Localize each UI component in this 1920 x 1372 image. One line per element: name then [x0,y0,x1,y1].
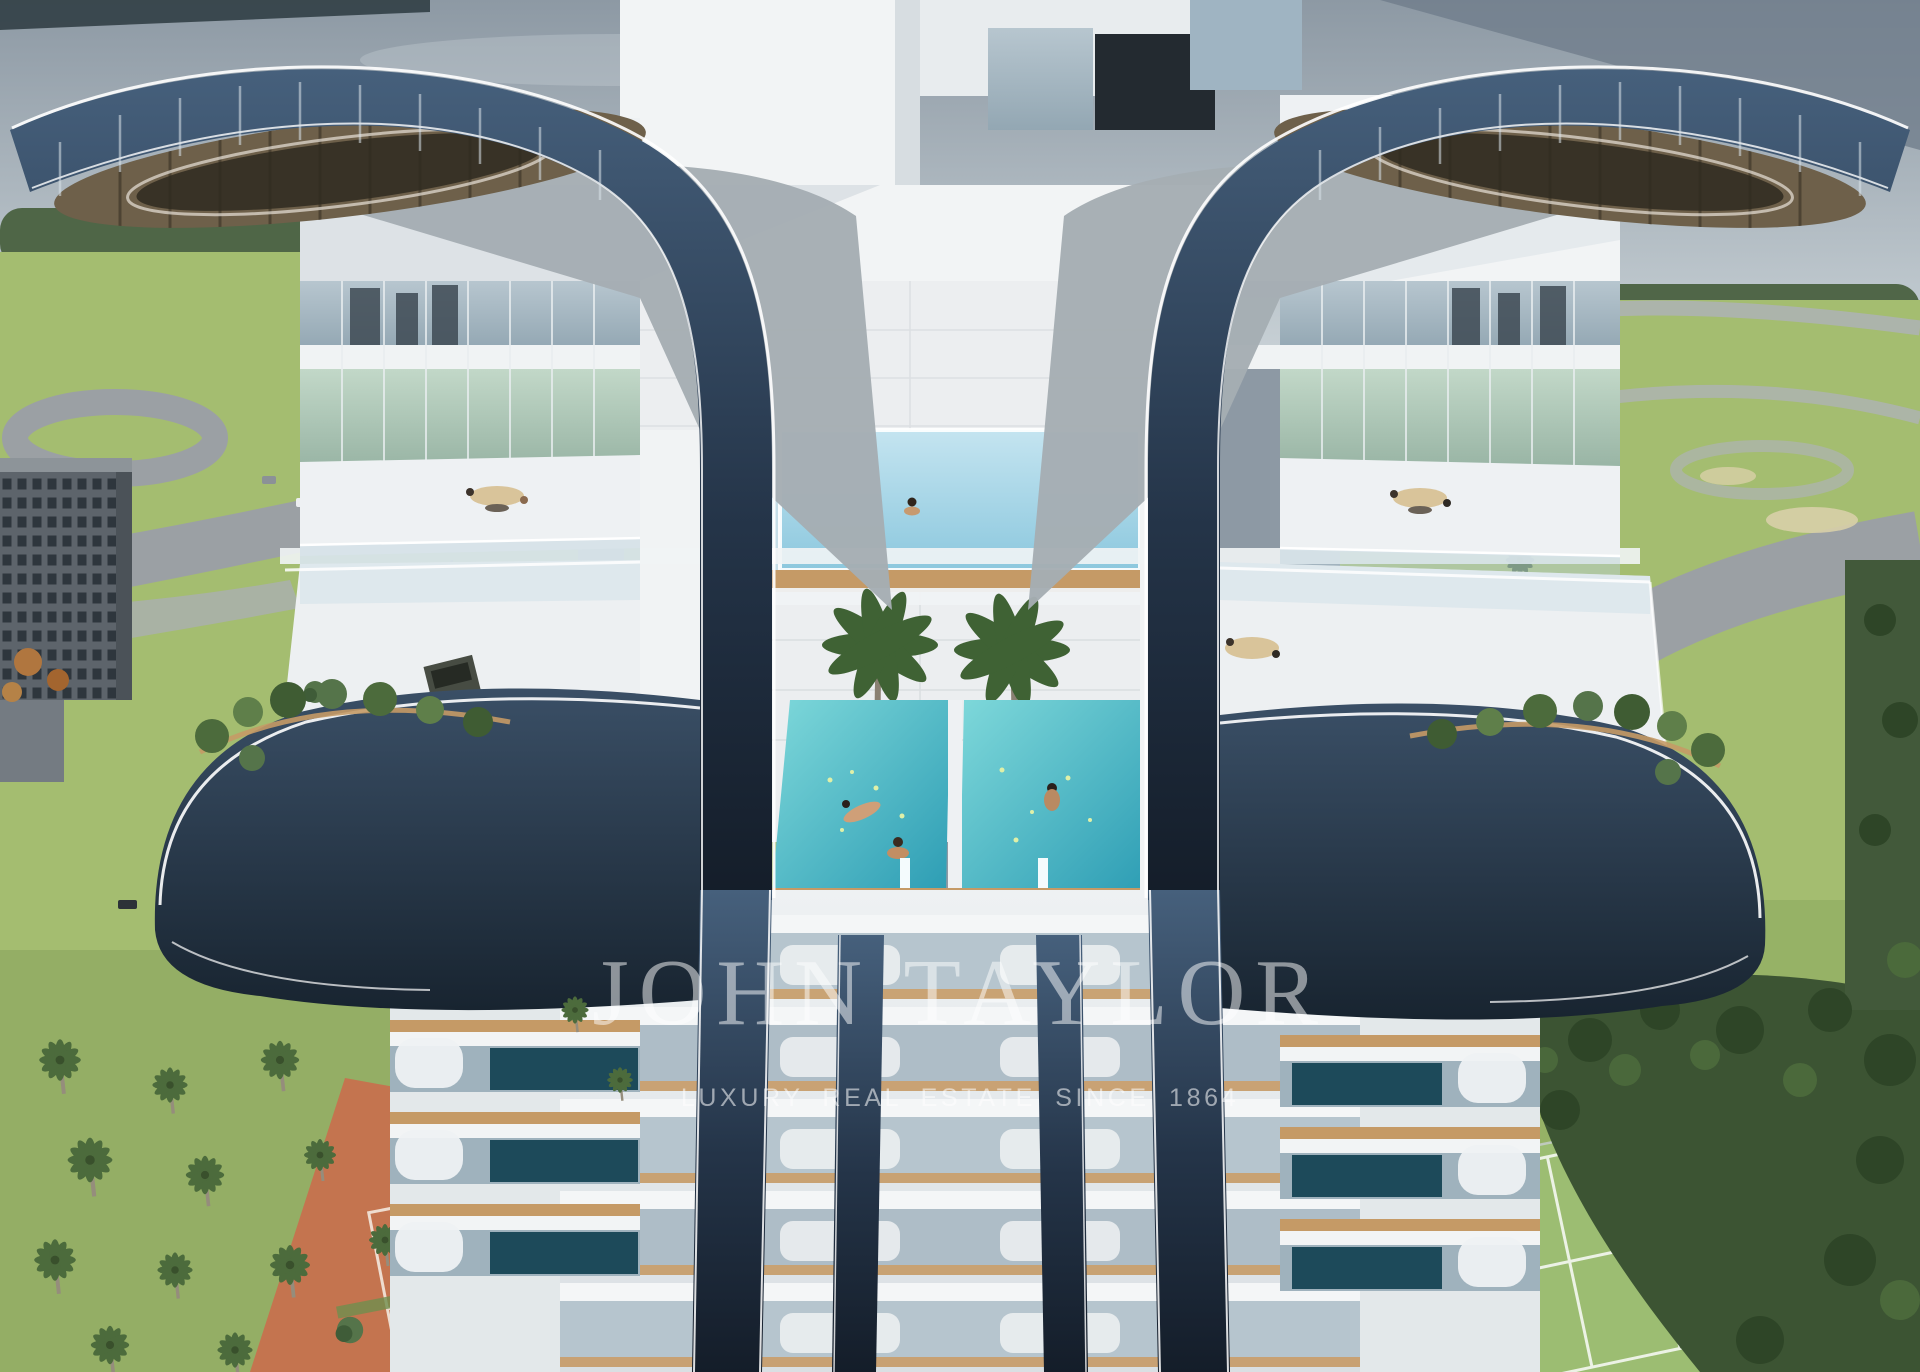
upper-terrace-left [300,455,640,568]
upper-terrace-right [1280,458,1620,578]
scene-illustration [0,0,1920,1372]
balcony-stack-left [390,1020,640,1276]
balcony-stack-right [1280,1035,1540,1291]
rendering-canvas: JOHN TAYLOR LUXURY REAL ESTATE SINCE 186… [0,0,1920,1372]
